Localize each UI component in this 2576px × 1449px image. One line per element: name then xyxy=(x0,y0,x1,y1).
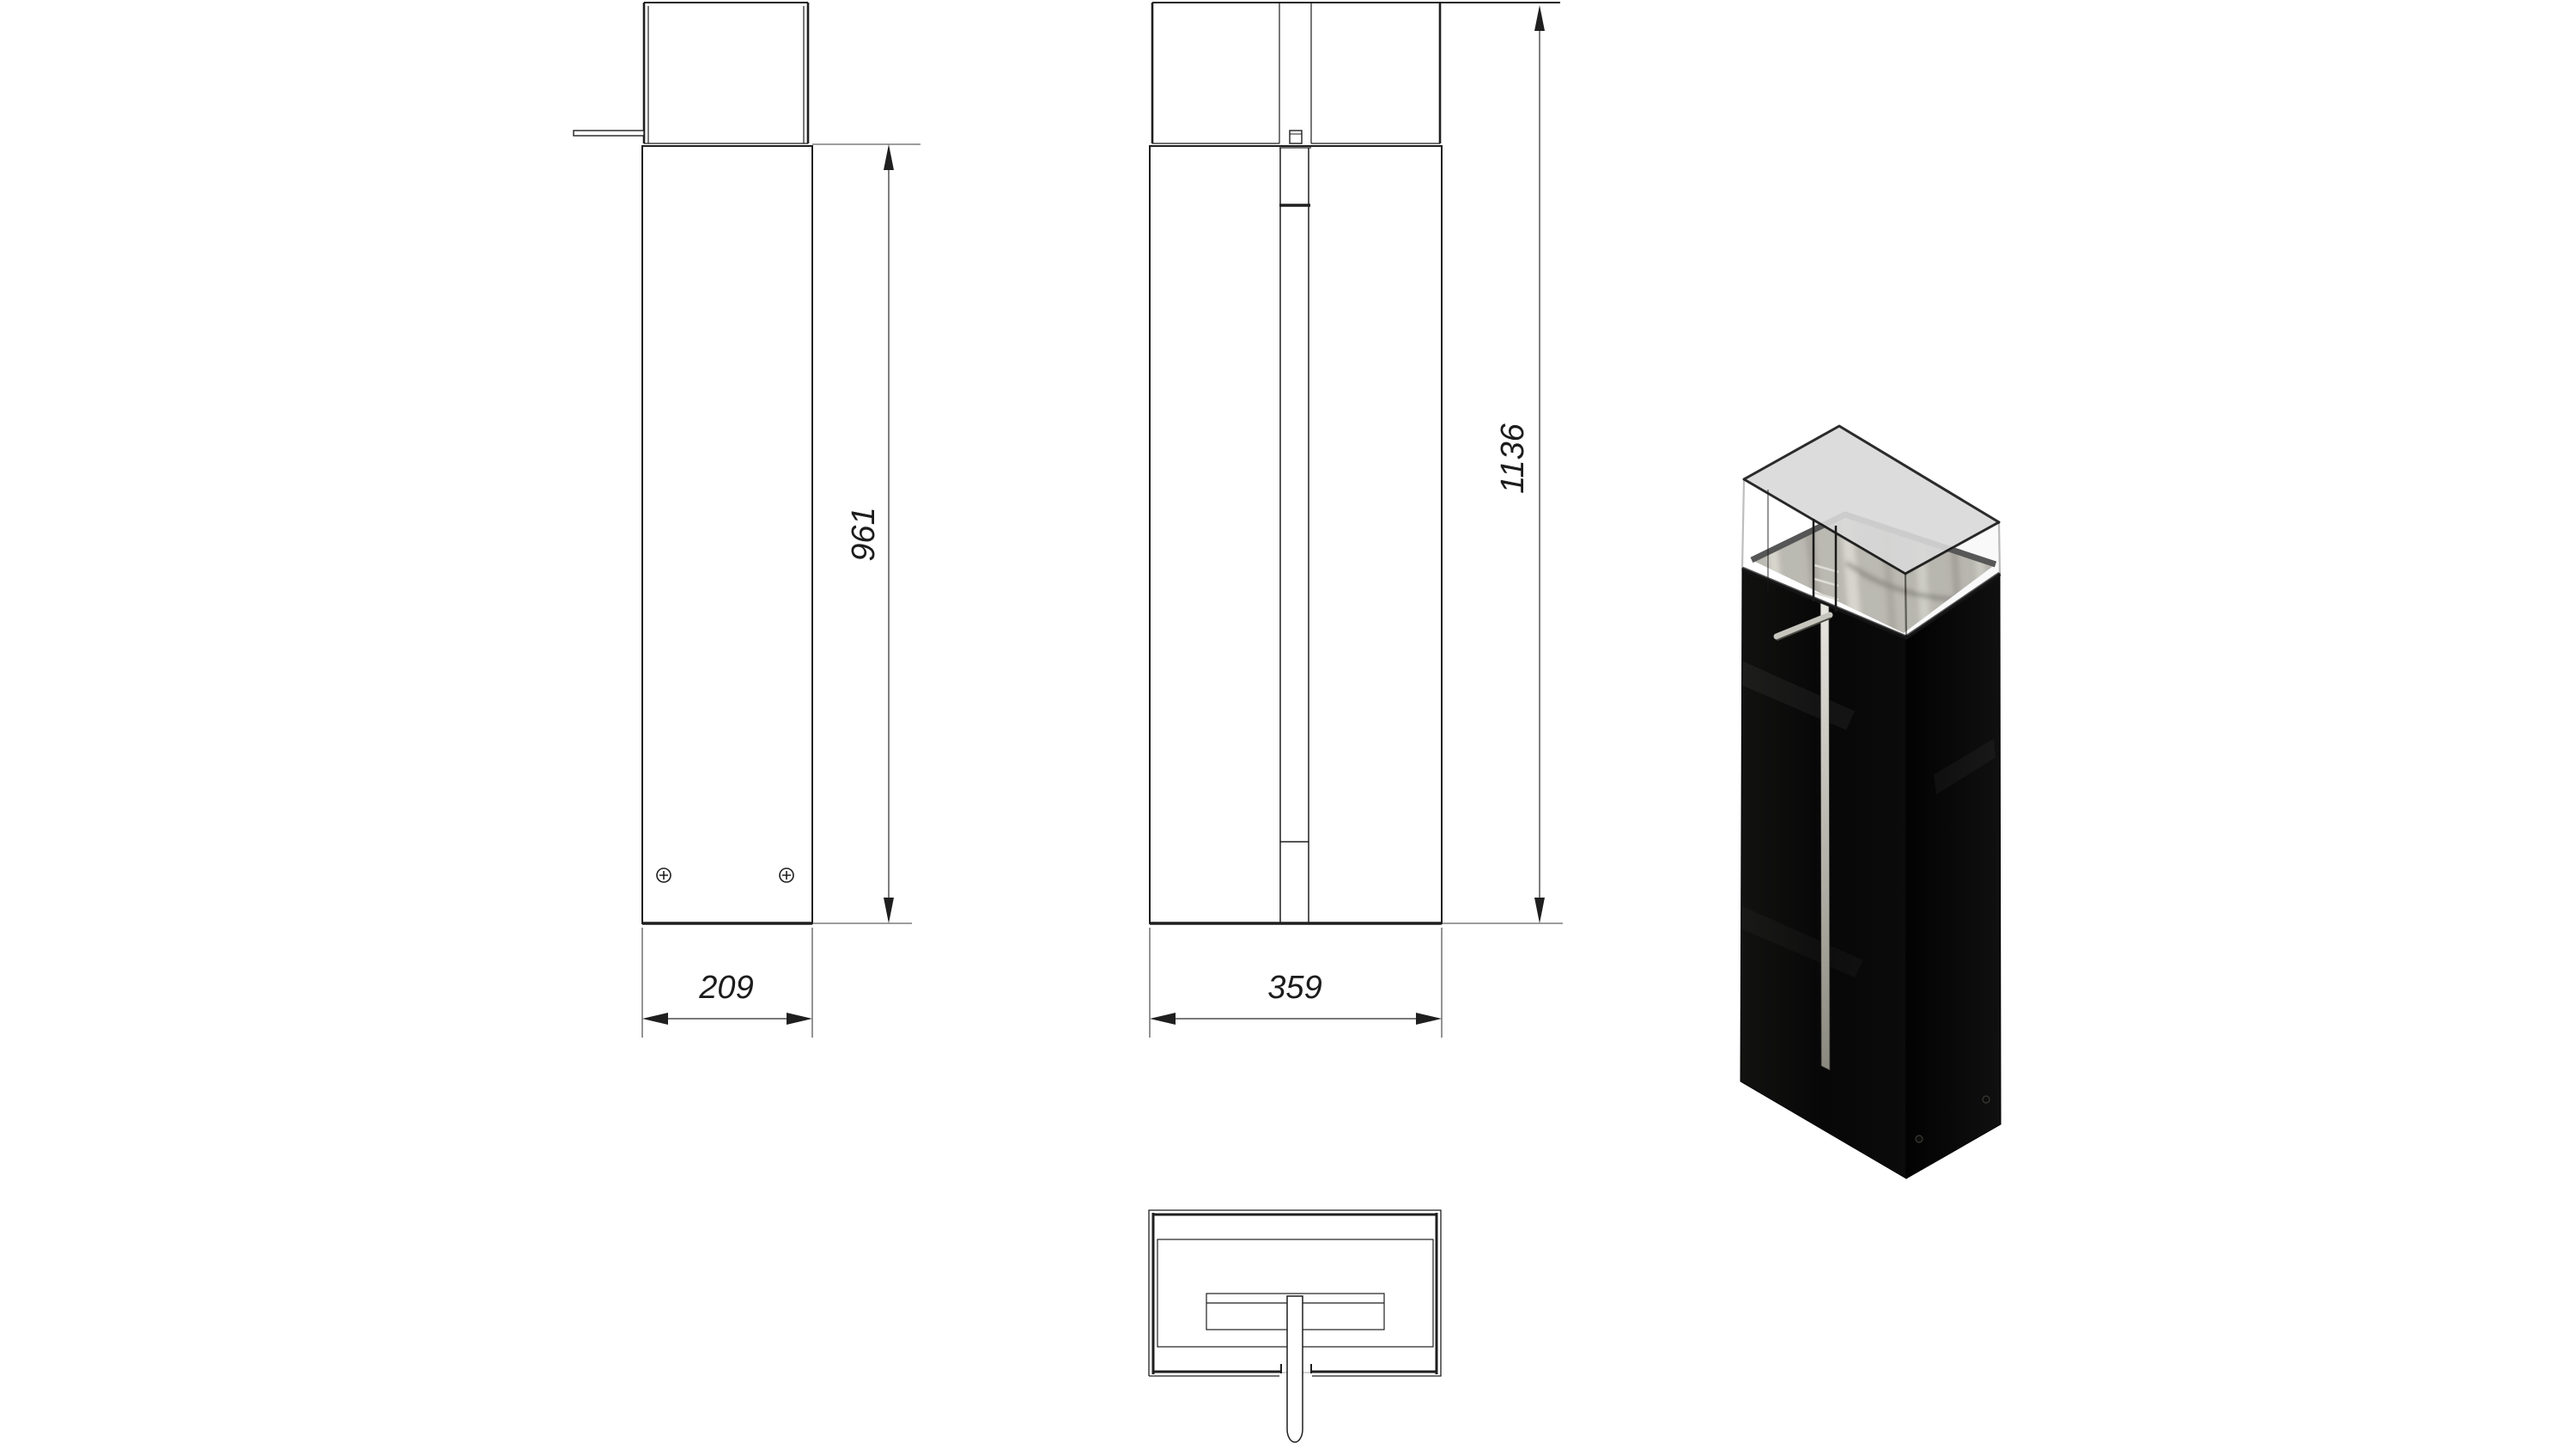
side-body-outline xyxy=(642,146,812,923)
front-body-outline xyxy=(1150,146,1442,923)
dim-side-width-label: 209 xyxy=(698,970,753,1006)
screw-icon xyxy=(1983,1096,1990,1103)
handle-rod-side xyxy=(574,131,644,136)
drawing-canvas: 961 209 xyxy=(0,0,2576,1449)
render-3d xyxy=(1741,426,2001,1178)
handle-rod-front xyxy=(1290,131,1302,143)
dim-front-width-label: 359 xyxy=(1267,970,1321,1006)
screw-icon xyxy=(1916,1135,1923,1142)
dim-front-height-label: 1136 xyxy=(1495,423,1531,494)
dim-side-height-label: 961 xyxy=(846,507,882,561)
technical-drawing-page: 961 209 xyxy=(0,0,2576,1449)
channel-strip xyxy=(1820,603,1830,1070)
body-right-face xyxy=(1906,574,2001,1178)
handle-stem-top xyxy=(1287,1296,1303,1442)
